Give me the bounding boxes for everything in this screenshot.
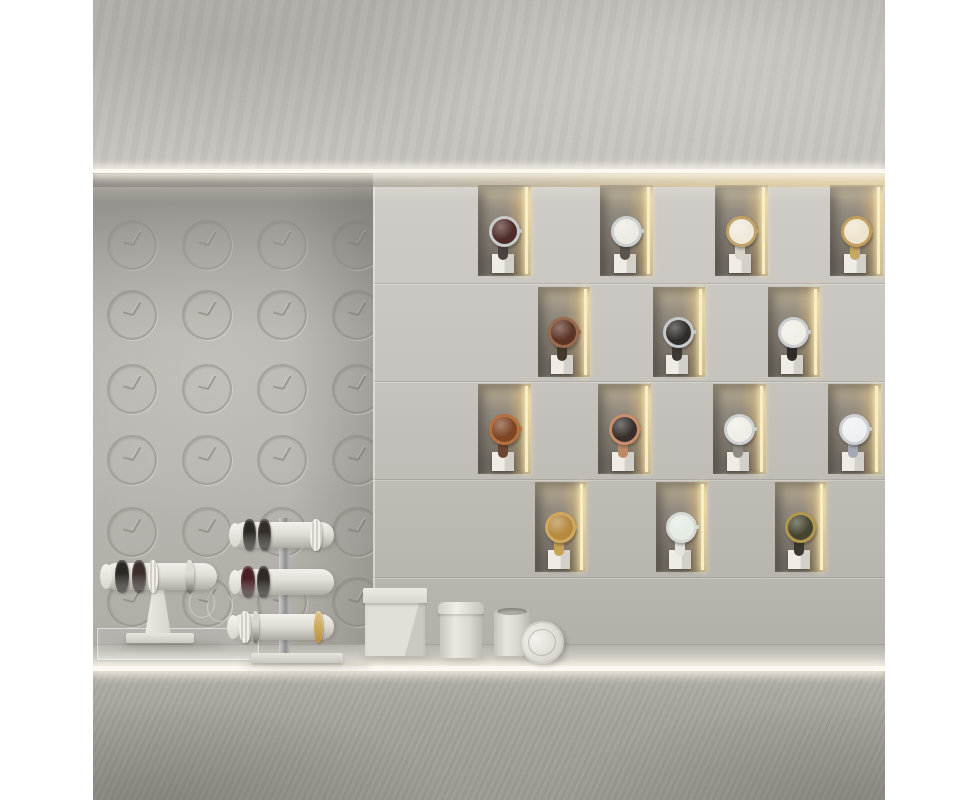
watch-niche [535, 482, 586, 572]
clock-motif [182, 220, 232, 270]
watch-crown [696, 525, 699, 529]
clock-pattern-wall [93, 173, 373, 648]
niche-led-strip [645, 386, 648, 472]
watch-crown [519, 427, 522, 431]
panel-seam [373, 283, 885, 284]
clock-hand-minute [282, 519, 291, 533]
panel-seam [373, 479, 885, 480]
clock-motif [257, 435, 307, 485]
clock-hand-hour [123, 598, 133, 603]
clock-hand-minute [207, 376, 216, 390]
clock-hand-minute [207, 232, 216, 246]
watch-niche [713, 384, 766, 474]
clock-motif [332, 435, 373, 485]
upper-wall [93, 0, 885, 170]
clock-motif [332, 220, 373, 270]
clock-hand-hour [273, 311, 283, 316]
clock-motif [107, 220, 157, 270]
watch-crown [871, 229, 874, 233]
niche-led-strip [584, 289, 587, 375]
clock-hand-minute [357, 376, 366, 390]
clock-motif [107, 290, 157, 340]
photo-area [93, 0, 885, 800]
watch-crown [808, 330, 811, 334]
clock-hand-minute [132, 447, 141, 461]
clock-motif [182, 507, 232, 557]
clock-hand-minute [357, 302, 366, 316]
watch-copper-dial-copper-watch [489, 414, 520, 445]
watch-niche [653, 287, 705, 377]
clock-hand-hour [123, 456, 133, 461]
watch-black-dial-rosegold-watch [609, 414, 640, 445]
niche-led-strip [760, 386, 763, 472]
clock-hand-minute [132, 519, 141, 533]
clock-hand-minute [132, 302, 141, 316]
watch-white-dial-gold-watch-white-strap [726, 216, 757, 247]
clock-hand-minute [282, 589, 291, 603]
clock-motif [107, 577, 157, 627]
niche-led-strip [525, 386, 528, 472]
clock-hand-minute [207, 589, 216, 603]
clock-hand-minute [357, 232, 366, 246]
clock-hand-hour [198, 456, 208, 461]
watch-niche [598, 384, 651, 474]
clock-motif [182, 435, 232, 485]
clock-motif [332, 507, 373, 557]
clock-motif [182, 290, 232, 340]
watch-white-dial-silver-watch [611, 216, 642, 247]
niche-display-wall [373, 173, 885, 648]
clock-hand-minute [207, 519, 216, 533]
clock-hand-hour [273, 241, 283, 246]
clock-hand-hour [123, 385, 133, 390]
clock-motif [257, 290, 307, 340]
top-light-strip [93, 169, 885, 173]
clock-motif [332, 364, 373, 414]
watch-niche [538, 287, 590, 377]
counter-light-strip [93, 666, 885, 671]
clock-hand-hour [273, 528, 283, 533]
niche-led-strip [701, 484, 704, 570]
clock-hand-hour [123, 528, 133, 533]
clock-hand-hour [348, 598, 358, 603]
clock-hand-minute [132, 589, 141, 603]
watch-niche [768, 287, 820, 377]
clock-motif [107, 364, 157, 414]
clock-hand-hour [273, 385, 283, 390]
clock-motif [332, 577, 373, 627]
clock-hand-hour [273, 598, 283, 603]
clock-motif [182, 364, 232, 414]
clock-hand-hour [348, 241, 358, 246]
clock-motif [182, 577, 232, 627]
clock-hand-minute [282, 302, 291, 316]
watch-store-render [0, 0, 978, 800]
clock-hand-hour [123, 311, 133, 316]
watch-niche [656, 482, 707, 572]
clock-motif [257, 507, 307, 557]
counter-wall-junction [93, 644, 885, 645]
watch-maroon-dial-silver-watch [489, 216, 520, 247]
watch-white-dial-gray-strap-watch [724, 414, 755, 445]
clock-hand-hour [198, 385, 208, 390]
clock-hand-hour [348, 456, 358, 461]
watch-crown [869, 427, 872, 431]
clock-hand-minute [282, 447, 291, 461]
panel-seam [373, 577, 885, 578]
strip-glow [93, 174, 885, 202]
niche-led-strip [699, 289, 702, 375]
watch-olive-dial-gold-rim-watch [785, 512, 816, 543]
clock-hand-hour [348, 311, 358, 316]
niche-led-strip [580, 484, 583, 570]
watch-crown [519, 229, 522, 233]
clock-hand-minute [132, 376, 141, 390]
clock-hand-minute [357, 519, 366, 533]
watch-niche [478, 384, 531, 474]
clock-hand-hour [198, 311, 208, 316]
watch-crown [815, 525, 818, 529]
watch-crown [578, 330, 581, 334]
clock-hand-minute [282, 376, 291, 390]
clock-motif [257, 577, 307, 627]
clock-motif [332, 290, 373, 340]
niche-led-strip [814, 289, 817, 375]
clock-motif [107, 435, 157, 485]
watch-gold-bracelet-watch [545, 512, 576, 543]
clock-motif [107, 507, 157, 557]
clock-hand-hour [348, 528, 358, 533]
watch-cream-dial-gold-watch-gold-strap [841, 216, 872, 247]
watch-crown [756, 229, 759, 233]
watch-crown [639, 427, 642, 431]
clock-hand-minute [132, 232, 141, 246]
niche-led-strip [820, 484, 823, 570]
clock-hand-minute [357, 447, 366, 461]
watch-niche [828, 384, 881, 474]
watch-crown [754, 427, 757, 431]
clock-hand-hour [198, 598, 208, 603]
clock-hand-hour [348, 385, 358, 390]
clock-hand-minute [207, 447, 216, 461]
panel-seam [373, 381, 885, 382]
clock-motif [257, 364, 307, 414]
clock-hand-hour [123, 241, 133, 246]
watch-crown [693, 330, 696, 334]
watch-niche [775, 482, 826, 572]
watch-crown [575, 525, 578, 529]
watch-brown-dial-copper-watch [548, 317, 579, 348]
clock-hand-hour [198, 241, 208, 246]
counter-front-panel [93, 671, 885, 800]
clock-hand-hour [273, 456, 283, 461]
watch-crown [641, 229, 644, 233]
counter-top [93, 644, 885, 666]
watch-mint-white-watch [666, 512, 697, 543]
clock-hand-minute [207, 302, 216, 316]
clock-motif [257, 220, 307, 270]
watch-white-dial-black-strap-watch [778, 317, 809, 348]
watch-white-dial-blue-gray-strap-watch [839, 414, 870, 445]
watch-black-dial-silver-watch [663, 317, 694, 348]
clock-hand-minute [357, 589, 366, 603]
niche-led-strip [875, 386, 878, 472]
clock-hand-minute [282, 232, 291, 246]
clock-hand-hour [198, 528, 208, 533]
